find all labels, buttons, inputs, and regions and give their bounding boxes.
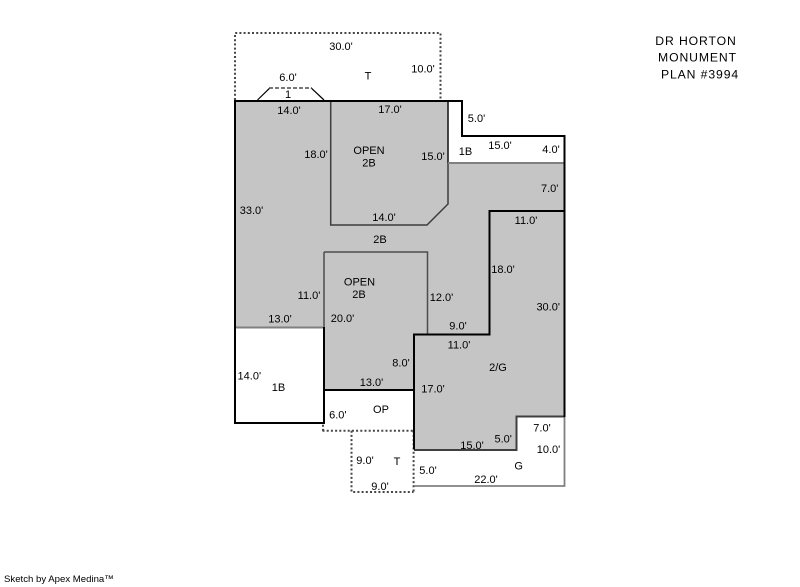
svg-text:14.0': 14.0' [238,370,262,382]
svg-text:33.0': 33.0' [240,205,264,217]
svg-text:Sketch by Apex Medina™: Sketch by Apex Medina™ [4,574,114,585]
svg-text:11.0': 11.0' [298,290,321,302]
svg-text:9.0': 9.0' [356,455,373,467]
svg-text:6.0': 6.0' [279,72,296,84]
svg-text:17.0': 17.0' [421,384,445,396]
svg-text:5.0': 5.0' [468,113,485,125]
svg-text:9.0': 9.0' [449,321,466,333]
svg-text:OP: OP [373,404,389,416]
svg-text:17.0': 17.0' [378,104,402,116]
svg-text:4.0': 4.0' [542,144,559,156]
svg-text:15.0': 15.0' [460,440,484,452]
svg-text:10.0': 10.0' [537,444,561,456]
svg-text:MONUMENT: MONUMENT [658,50,737,64]
svg-text:2B: 2B [352,289,365,301]
svg-text:5.0': 5.0' [419,465,436,477]
svg-text:30.0': 30.0' [329,41,353,53]
svg-text:DR HORTON: DR HORTON [655,34,736,48]
svg-text:8.0': 8.0' [392,357,409,369]
svg-text:22.0': 22.0' [474,474,498,486]
svg-text:1B: 1B [272,382,285,394]
svg-text:OPEN: OPEN [353,145,384,157]
svg-text:T: T [394,456,401,468]
svg-text:13.0': 13.0' [268,314,292,326]
svg-text:T: T [365,71,372,83]
svg-text:9.0': 9.0' [371,481,388,493]
svg-text:14.0': 14.0' [277,105,301,117]
svg-text:15.0': 15.0' [421,151,445,163]
svg-text:12.0': 12.0' [430,292,454,304]
svg-text:PLAN #3994: PLAN #3994 [661,68,739,82]
svg-text:15.0': 15.0' [488,140,512,152]
svg-text:18.0': 18.0' [491,264,515,276]
svg-text:10.0': 10.0' [411,64,435,76]
svg-text:18.0': 18.0' [304,149,328,161]
svg-text:20.0': 20.0' [331,313,355,325]
svg-text:OPEN: OPEN [344,277,375,289]
svg-text:2/G: 2/G [489,362,507,374]
svg-text:30.0': 30.0' [536,302,560,314]
svg-text:7.0': 7.0' [541,183,558,195]
svg-text:5.0': 5.0' [494,434,511,446]
svg-text:6.0': 6.0' [329,410,346,422]
svg-text:G: G [514,460,523,472]
svg-text:2B: 2B [362,158,375,170]
svg-text:13.0': 13.0' [360,377,384,389]
svg-text:1B: 1B [459,146,472,158]
svg-text:2B: 2B [373,234,386,246]
svg-text:7.0': 7.0' [533,422,550,434]
svg-text:1: 1 [285,89,291,101]
svg-text:11.0': 11.0' [448,340,471,352]
svg-text:11.0': 11.0' [515,215,538,227]
svg-text:14.0': 14.0' [372,212,396,224]
